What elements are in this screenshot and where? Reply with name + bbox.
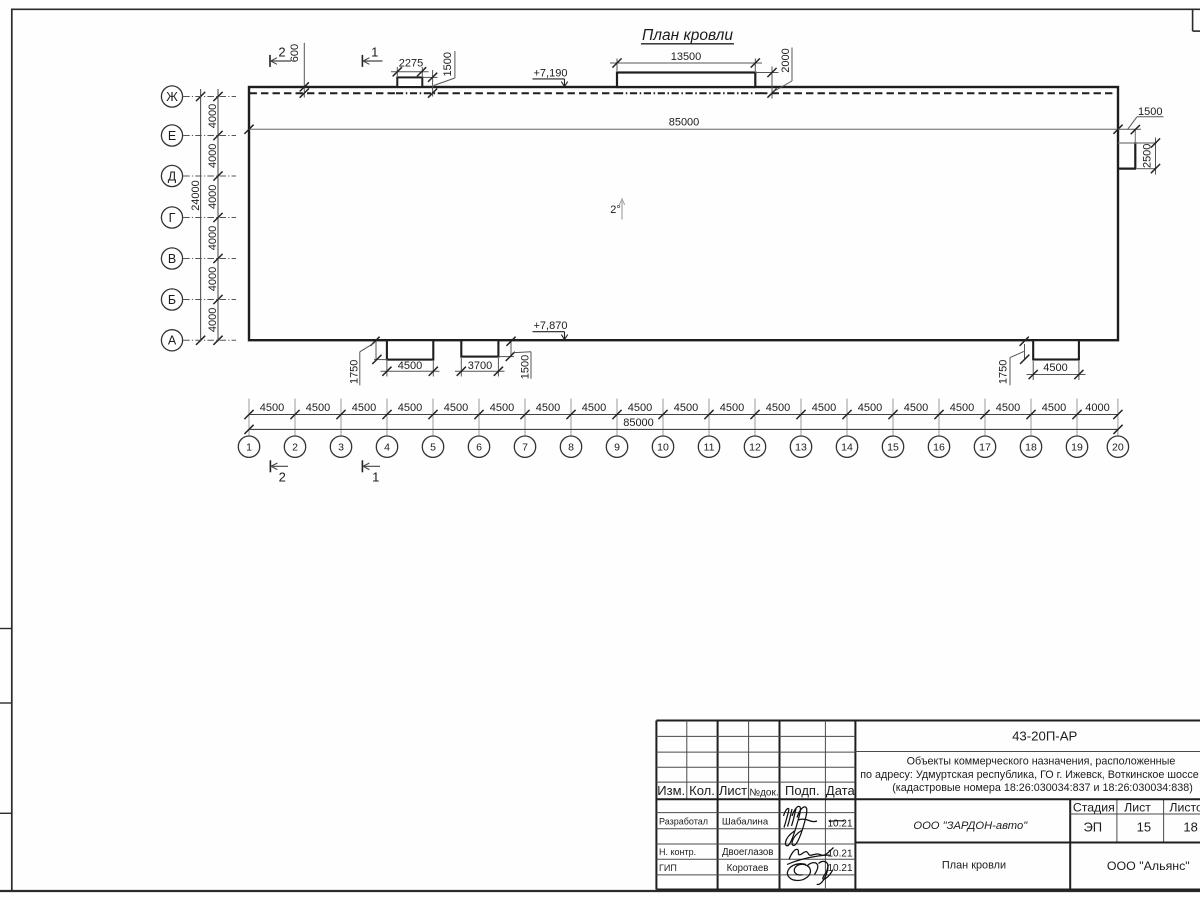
svg-text:10: 10 — [657, 442, 669, 454]
svg-text:4000: 4000 — [207, 185, 219, 209]
svg-text:4500: 4500 — [306, 402, 330, 414]
svg-text:2°: 2° — [610, 204, 621, 216]
svg-text:4000: 4000 — [207, 144, 219, 168]
svg-text:10.21: 10.21 — [827, 818, 852, 829]
svg-text:4000: 4000 — [1085, 402, 1109, 414]
svg-text:Лист: Лист — [719, 783, 747, 798]
svg-text:600: 600 — [289, 44, 301, 62]
svg-text:4000: 4000 — [207, 267, 219, 291]
svg-text:План кровли: План кровли — [642, 27, 733, 44]
svg-text:4500: 4500 — [996, 402, 1020, 414]
svg-text:2: 2 — [279, 469, 286, 484]
svg-text:Д: Д — [168, 169, 177, 183]
svg-text:4500: 4500 — [260, 402, 284, 414]
svg-text:1500: 1500 — [1138, 106, 1162, 118]
svg-text:2275: 2275 — [399, 58, 423, 70]
svg-text:4000: 4000 — [207, 308, 219, 332]
svg-text:4500: 4500 — [1043, 362, 1067, 374]
svg-text:Разработал: Разработал — [659, 817, 708, 827]
svg-text:4500: 4500 — [766, 402, 790, 414]
svg-text:85000: 85000 — [623, 417, 654, 429]
svg-text:Дата: Дата — [826, 783, 856, 798]
svg-text:Объекты коммерческого назначен: Объекты коммерческого назначения, распол… — [907, 756, 1176, 768]
svg-text:Шабалина: Шабалина — [722, 817, 769, 828]
svg-text:15: 15 — [887, 442, 899, 454]
svg-text:ООО "Альянс": ООО "Альянс" — [1107, 859, 1190, 873]
svg-text:План кровли: План кровли — [942, 860, 1006, 872]
svg-text:18: 18 — [1183, 819, 1197, 834]
svg-text:Н. контр.: Н. контр. — [659, 847, 696, 857]
svg-text:Изм.: Изм. — [657, 783, 685, 798]
svg-text:Стадия: Стадия — [1073, 800, 1115, 814]
svg-text:(кадастровые номера 18:26:0300: (кадастровые номера 18:26:030034:837 и 1… — [892, 782, 1193, 794]
svg-text:Подп.: Подп. — [785, 783, 820, 798]
svg-text:Лист: Лист — [1124, 800, 1151, 814]
svg-text:12: 12 — [749, 442, 761, 454]
svg-text:4500: 4500 — [490, 402, 514, 414]
svg-text:4500: 4500 — [582, 402, 606, 414]
svg-text:4000: 4000 — [207, 104, 219, 128]
svg-text:43-20П-АР: 43-20П-АР — [1012, 728, 1077, 743]
svg-text:4500: 4500 — [398, 360, 422, 372]
svg-text:1: 1 — [246, 442, 252, 454]
svg-text:16: 16 — [933, 442, 945, 454]
svg-text:Двоеглазов: Двоеглазов — [722, 847, 774, 858]
svg-text:4500: 4500 — [720, 402, 744, 414]
svg-text:3700: 3700 — [468, 360, 492, 372]
svg-text:4500: 4500 — [628, 402, 652, 414]
svg-text:13500: 13500 — [671, 51, 702, 63]
svg-text:+7,190: +7,190 — [534, 67, 568, 79]
svg-text:Листов: Листов — [1169, 800, 1200, 814]
svg-text:1: 1 — [372, 469, 379, 484]
svg-text:1750: 1750 — [997, 360, 1009, 384]
svg-text:15: 15 — [1137, 819, 1151, 834]
svg-text:ЭП: ЭП — [1083, 819, 1102, 834]
svg-text:по адресу: Удмуртская республи: по адресу: Удмуртская республика, ГО г. … — [860, 769, 1199, 781]
svg-text:4000: 4000 — [207, 226, 219, 250]
svg-text:19: 19 — [1071, 442, 1083, 454]
svg-text:3: 3 — [338, 442, 344, 454]
svg-text:Кол.: Кол. — [689, 783, 715, 798]
svg-text:4500: 4500 — [812, 402, 836, 414]
svg-text:17: 17 — [979, 442, 991, 454]
svg-text:8: 8 — [568, 442, 574, 454]
svg-text:85000: 85000 — [669, 116, 700, 128]
svg-text:4500: 4500 — [1042, 402, 1066, 414]
svg-text:№док.: №док. — [749, 788, 778, 799]
svg-text:4500: 4500 — [444, 402, 468, 414]
svg-text:1: 1 — [371, 44, 378, 59]
svg-text:6: 6 — [476, 442, 482, 454]
svg-text:Коротаев: Коротаев — [727, 863, 769, 874]
svg-text:2500: 2500 — [1142, 144, 1154, 168]
svg-text:2: 2 — [292, 442, 298, 454]
svg-text:4500: 4500 — [858, 402, 882, 414]
svg-text:5: 5 — [430, 442, 436, 454]
svg-text:2000: 2000 — [780, 48, 792, 72]
svg-text:В: В — [168, 252, 176, 266]
svg-text:18: 18 — [1025, 442, 1037, 454]
svg-text:Г: Г — [169, 211, 176, 225]
svg-text:Ж: Ж — [166, 90, 178, 104]
svg-text:4500: 4500 — [398, 402, 422, 414]
svg-text:4500: 4500 — [536, 402, 560, 414]
svg-text:9: 9 — [614, 442, 620, 454]
svg-text:А: А — [168, 334, 177, 348]
svg-text:2: 2 — [278, 44, 285, 59]
svg-text:1500: 1500 — [442, 52, 454, 76]
svg-text:11: 11 — [704, 442, 715, 454]
svg-text:13: 13 — [795, 442, 807, 454]
svg-text:4500: 4500 — [352, 402, 376, 414]
svg-text:20: 20 — [1112, 442, 1124, 454]
svg-text:+7,870: +7,870 — [534, 320, 568, 332]
svg-text:ГИП: ГИП — [659, 863, 677, 873]
svg-text:4: 4 — [384, 442, 390, 454]
svg-text:Б: Б — [168, 293, 176, 307]
svg-text:4500: 4500 — [904, 402, 928, 414]
svg-text:Е: Е — [168, 129, 176, 143]
svg-text:7: 7 — [522, 442, 528, 454]
svg-text:1500: 1500 — [520, 355, 532, 379]
svg-text:14: 14 — [841, 442, 853, 454]
svg-text:4500: 4500 — [950, 402, 974, 414]
svg-text:1750: 1750 — [348, 360, 360, 384]
svg-text:ООО "ЗАРДОН-авто": ООО "ЗАРДОН-авто" — [913, 820, 1028, 832]
svg-text:24000: 24000 — [190, 180, 202, 211]
svg-text:4500: 4500 — [674, 402, 698, 414]
